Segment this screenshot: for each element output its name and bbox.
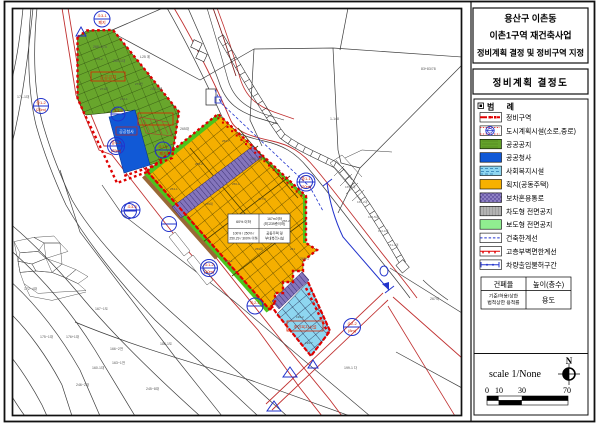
svg-text:중1-2: 중1-2 bbox=[111, 140, 121, 145]
svg-text:160-1대: 160-1대 bbox=[92, 365, 104, 370]
svg-text:공공청사: 공공청사 bbox=[119, 128, 134, 134]
svg-text:260-1: 260-1 bbox=[225, 259, 233, 263]
svg-text:271대: 271대 bbox=[100, 86, 108, 91]
svg-text:100% / 250% /: 100% / 250% / bbox=[233, 232, 255, 236]
svg-text:소2-2: 소2-2 bbox=[347, 321, 357, 326]
svg-text:높이(층수): 높이(층수) bbox=[533, 280, 564, 289]
svg-text:172~4대: 172~4대 bbox=[24, 286, 37, 291]
svg-text:199-7: 199-7 bbox=[305, 341, 313, 345]
svg-text:70: 70 bbox=[563, 386, 571, 395]
svg-text:주민복지시설: 주민복지시설 bbox=[293, 324, 316, 331]
svg-text:보차혼용통로: 보차혼용통로 bbox=[506, 193, 544, 202]
svg-text:도시계획시설(소로,중로): 도시계획시설(소로,중로) bbox=[506, 126, 576, 135]
svg-text:267외: 267외 bbox=[430, 296, 439, 301]
svg-text:중1-2: 중1-2 bbox=[36, 100, 46, 105]
svg-text:163-5대: 163-5대 bbox=[368, 214, 379, 219]
svg-text:범 례: 범 례 bbox=[487, 102, 519, 112]
svg-text:255대: 255대 bbox=[205, 201, 213, 206]
svg-text:254-1: 254-1 bbox=[170, 187, 178, 191]
svg-text:정비계획 결정도: 정비계획 결정도 bbox=[493, 77, 569, 89]
svg-text:(20m): (20m) bbox=[301, 184, 312, 189]
svg-text:258-2: 258-2 bbox=[282, 219, 290, 223]
svg-text:정비구역: 정비구역 bbox=[506, 113, 531, 122]
svg-text:(10m): (10m) bbox=[204, 269, 215, 274]
svg-text:공공공지: 공공공지 bbox=[100, 74, 117, 81]
svg-text:259대: 259대 bbox=[255, 246, 263, 251]
svg-text:용도: 용도 bbox=[542, 296, 556, 305]
svg-text:이촌1구역 재건축사업: 이촌1구역 재건축사업 bbox=[489, 30, 571, 41]
svg-text:164-2대: 164-2대 bbox=[357, 199, 368, 204]
svg-text:266-1대: 266-1대 bbox=[250, 156, 262, 161]
svg-text:250.29 / 300% 이하: 250.29 / 300% 이하 bbox=[229, 236, 257, 241]
svg-text:건폐율: 건폐율 bbox=[494, 280, 514, 289]
svg-text:중1-1: 중1-1 bbox=[301, 176, 311, 181]
svg-text:차량출입불허구간: 차량출입불허구간 bbox=[506, 260, 557, 269]
svg-text:265대: 265대 bbox=[180, 126, 189, 131]
svg-text:부대복리시설: 부대복리시설 bbox=[265, 236, 284, 241]
svg-text:법적상한 용적률: 법적상한 용적률 bbox=[487, 299, 520, 306]
svg-text:공동주택 및: 공동주택 및 bbox=[266, 231, 283, 236]
svg-text:161-3대: 161-3대 bbox=[388, 242, 399, 247]
svg-text:199-2: 199-2 bbox=[296, 315, 304, 319]
svg-text:175~1대: 175~1대 bbox=[40, 334, 53, 339]
svg-text:획지(공동주택): 획지(공동주택) bbox=[506, 180, 549, 189]
svg-text:사회복지시설: 사회복지시설 bbox=[506, 167, 544, 176]
svg-text:(25m): (25m) bbox=[36, 107, 47, 112]
svg-text:252-7: 252-7 bbox=[222, 139, 230, 143]
svg-text:소3-3: 소3-3 bbox=[127, 204, 137, 209]
svg-text:0: 0 bbox=[485, 386, 489, 395]
svg-text:30: 30 bbox=[518, 386, 526, 395]
svg-text:272-1: 272-1 bbox=[120, 97, 128, 101]
svg-text:기준/허용/상한: 기준/허용/상한 bbox=[489, 293, 519, 300]
svg-text:(25m): (25m) bbox=[111, 148, 122, 153]
svg-text:167m이하: 167m이하 bbox=[267, 216, 283, 221]
svg-text:건축한계선: 건축한계선 bbox=[506, 234, 538, 243]
svg-text:소1-2: 소1-2 bbox=[204, 262, 214, 267]
svg-text:scale 1/None: scale 1/None bbox=[489, 369, 541, 380]
svg-text:보도형 전면공지: 보도형 전면공지 bbox=[506, 220, 552, 229]
svg-text:246~2대: 246~2대 bbox=[76, 382, 89, 387]
svg-text:공공청사: 공공청사 bbox=[506, 153, 532, 162]
svg-text:60% 이하: 60% 이하 bbox=[236, 219, 251, 224]
svg-text:폐지: 폐지 bbox=[98, 19, 106, 25]
svg-text:261: 261 bbox=[290, 247, 295, 251]
svg-text:공공공지: 공공공지 bbox=[506, 140, 531, 149]
svg-text:소1-1: 소1-1 bbox=[158, 144, 168, 149]
svg-text:소3-1: 소3-1 bbox=[97, 13, 107, 18]
svg-text:차도형 전면공지: 차도형 전면공지 bbox=[506, 207, 552, 216]
svg-text:L25 계: L25 계 bbox=[140, 54, 150, 59]
svg-text:정비계획 결정 및 정비구역 지정: 정비계획 결정 및 정비구역 지정 bbox=[477, 48, 584, 58]
svg-text:소3-2: 소3-2 bbox=[113, 108, 123, 113]
svg-text:163~1전: 163~1전 bbox=[112, 360, 125, 365]
svg-text:171-1대: 171-1대 bbox=[17, 94, 29, 99]
svg-text:245~8대: 245~8대 bbox=[146, 386, 159, 391]
svg-text:253-2: 253-2 bbox=[195, 162, 203, 166]
svg-text:186-1도: 186-1도 bbox=[160, 342, 173, 346]
svg-text:263-1대: 263-1대 bbox=[150, 86, 162, 91]
svg-text:268-1: 268-1 bbox=[300, 257, 309, 261]
svg-text:199-1 다: 199-1 다 bbox=[344, 365, 358, 370]
svg-text:소2-1: 소2-1 bbox=[250, 300, 260, 305]
svg-text:167~1도: 167~1도 bbox=[95, 307, 109, 311]
svg-text:176+1대: 176+1대 bbox=[66, 334, 79, 339]
svg-text:268~274: 268~274 bbox=[93, 45, 107, 49]
svg-text:162-1대: 162-1대 bbox=[378, 228, 389, 233]
svg-text:273전: 273전 bbox=[135, 81, 143, 86]
svg-text:270-2: 270-2 bbox=[95, 57, 103, 61]
svg-text:(8m): (8m) bbox=[348, 328, 357, 333]
svg-text:고층부벽면한계선: 고층부벽면한계선 bbox=[506, 247, 557, 256]
svg-text:용산구 이촌동: 용산구 이촌동 bbox=[504, 13, 556, 24]
svg-text:10: 10 bbox=[495, 386, 503, 395]
svg-text:256-1: 256-1 bbox=[232, 182, 240, 186]
svg-text:269-1대: 269-1대 bbox=[113, 58, 125, 63]
svg-text:166~2전: 166~2전 bbox=[110, 346, 123, 351]
svg-text:폐지: 폐지 bbox=[159, 150, 167, 156]
svg-text:83+83/78: 83+83/78 bbox=[421, 67, 436, 71]
svg-text:1-148: 1-148 bbox=[330, 117, 339, 121]
svg-text:257-4: 257-4 bbox=[258, 197, 266, 201]
